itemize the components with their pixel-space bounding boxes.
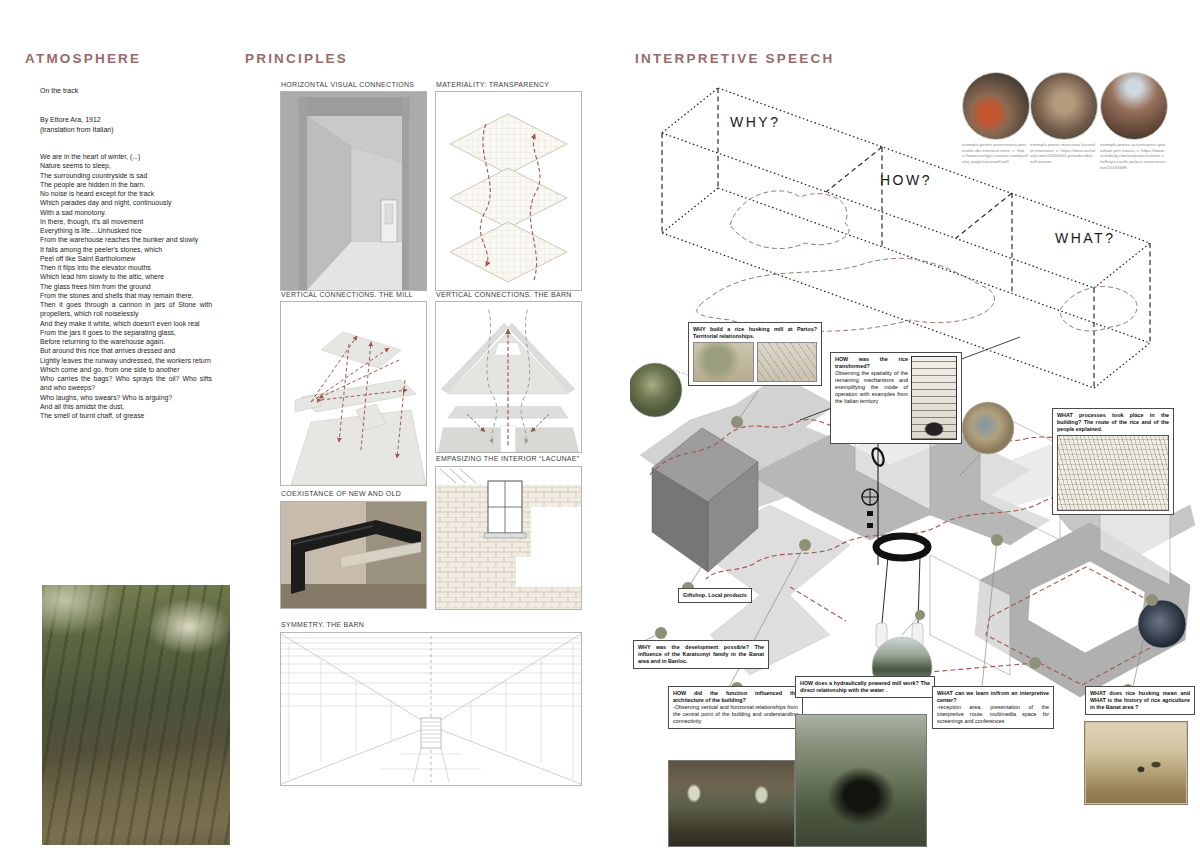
- label-coexistance: COEXISTANCE OF NEW AND OLD: [281, 490, 401, 497]
- river-aerial-photo: [962, 402, 1014, 454]
- annotation-how-rice: HOW was the rice transformed? Observing …: [830, 352, 962, 444]
- trees-photo: [42, 585, 230, 845]
- aerial-village-photo: [630, 363, 682, 417]
- zone-what-label: WHAT?: [1055, 230, 1115, 246]
- annotation-how-hydraulic-title: HOW does a hydraulically powered mill wo…: [800, 680, 930, 694]
- lacunae-diagram: [436, 467, 581, 609]
- map-thumbnail-1: [693, 342, 754, 382]
- label-horizontal-connections: HORIZONTAL VISUAL CONNECTIONS: [281, 81, 414, 88]
- diagram-coexistance-panel: [280, 501, 427, 609]
- reference-photo-3: [1100, 72, 1168, 140]
- annotation-why-development: WHY was the development possible? The in…: [633, 640, 769, 669]
- diagram-lacunae-panel: [435, 466, 582, 610]
- atmosphere-title: ATMOSPHERE: [25, 51, 141, 66]
- diagram-symmetry-panel: [280, 632, 582, 786]
- label-lacunae: EMPASIZING THE INTERIOR “LACUNAE”: [436, 455, 579, 462]
- reference-caption-3: exemplu pentru accentuarea spatialitatii…: [1100, 142, 1166, 171]
- annotation-giftshop-title: Giftshop. Local products: [683, 592, 747, 598]
- vertical-barn-diagram: [436, 302, 581, 452]
- annotation-giftshop: Giftshop. Local products: [678, 588, 752, 603]
- annotation-how-rice-title: HOW was the rice transformed?: [835, 356, 908, 370]
- principles-title: PRINCIPLES: [245, 51, 348, 66]
- map-thumbnail-2: [757, 342, 818, 382]
- label-vertical-mill: VERTICAL CONNECTIONS. THE MILL: [281, 291, 413, 298]
- label-vertical-barn: VERTICAL CONNECTIONS. THE BARN: [436, 291, 572, 298]
- poem-byline-2: (translation from Italian): [40, 126, 114, 133]
- annotation-what-husking: WHAT does rice husking mean and WHAT is …: [1085, 686, 1195, 715]
- why-mill-maps: [693, 342, 817, 382]
- label-materiality: MATERIALITY: TRANSPARENCY: [436, 81, 549, 88]
- annotation-what-husking-title: WHAT does rice husking mean and WHAT is …: [1090, 690, 1190, 711]
- annotation-how-rice-body: Observing the spatiality of the remainin…: [835, 370, 908, 405]
- reference-caption-1: exemplu pentru prezentarea proceselor di…: [962, 142, 1028, 165]
- transparency-diagram: [436, 92, 581, 290]
- presentation-board: ATMOSPHERE On the track By Ettore Ara, 1…: [0, 0, 1200, 848]
- annotation-how-function-title: HOW did the function influenced the arch…: [673, 690, 798, 704]
- vertical-mill-diagram: [281, 302, 426, 485]
- annotation-why-mill-title: WHY build a rice husking mill at Partoș?…: [693, 326, 817, 340]
- doorway-diagram: [281, 92, 426, 290]
- label-symmetry: SYMMETRY. THE BARN: [281, 621, 364, 628]
- process-engraving: [1057, 435, 1169, 511]
- reference-photo-1: [962, 72, 1030, 140]
- annotation-how-hydraulic: HOW does a hydraulically powered mill wo…: [795, 676, 935, 698]
- annotation-what-processes-title: WHAT processes took place in the buildin…: [1057, 412, 1169, 433]
- zone-how-label: HOW?: [880, 172, 932, 188]
- signage-photo: [1138, 600, 1186, 648]
- ruin-interior-photo: [668, 760, 795, 847]
- annotation-what-learn-title: WHAT can we learn in/from an interpretiv…: [937, 690, 1049, 704]
- poem-text: We are in the heart of winter, (...) Nat…: [40, 152, 212, 420]
- diagram-doorway-panel: [280, 91, 427, 291]
- symmetry-diagram: [281, 633, 581, 785]
- poem-title: On the track: [40, 87, 78, 94]
- mill-section-drawing: [911, 356, 957, 440]
- coexistance-diagram: [281, 502, 426, 608]
- diagram-vertical-mill-panel: [280, 301, 427, 486]
- canal-tunnel-photo: [795, 714, 927, 847]
- annotation-what-learn: WHAT can we learn in/from an interpretiv…: [932, 686, 1054, 729]
- annotation-how-function-body: -Observing vertical and horizontal relat…: [673, 704, 798, 725]
- interpretive-title: INTERPRETIVE SPEECH: [635, 51, 834, 66]
- diagram-vertical-barn-panel: [435, 301, 582, 453]
- annotation-why-mill: WHY build a rice husking mill at Partoș?…: [688, 322, 822, 386]
- zone-why-label: WHY?: [730, 114, 780, 130]
- poem-byline: By Ettore Ara, 1912: [40, 116, 101, 123]
- annotation-why-development-title: WHY was the development possible? The in…: [638, 644, 764, 665]
- reference-photo-2: [1030, 72, 1098, 140]
- annotation-what-processes: WHAT processes took place in the buildin…: [1052, 408, 1174, 515]
- annotation-what-learn-body: -reception area, presentation of the int…: [937, 704, 1049, 725]
- reference-caption-2: exemplu pentru marcarea lacunelor interi…: [1030, 142, 1096, 165]
- annotation-how-function: HOW did the function influenced the arch…: [668, 686, 803, 729]
- historic-rice-photo: [1085, 722, 1187, 804]
- diagram-transparency-panel: [435, 91, 582, 291]
